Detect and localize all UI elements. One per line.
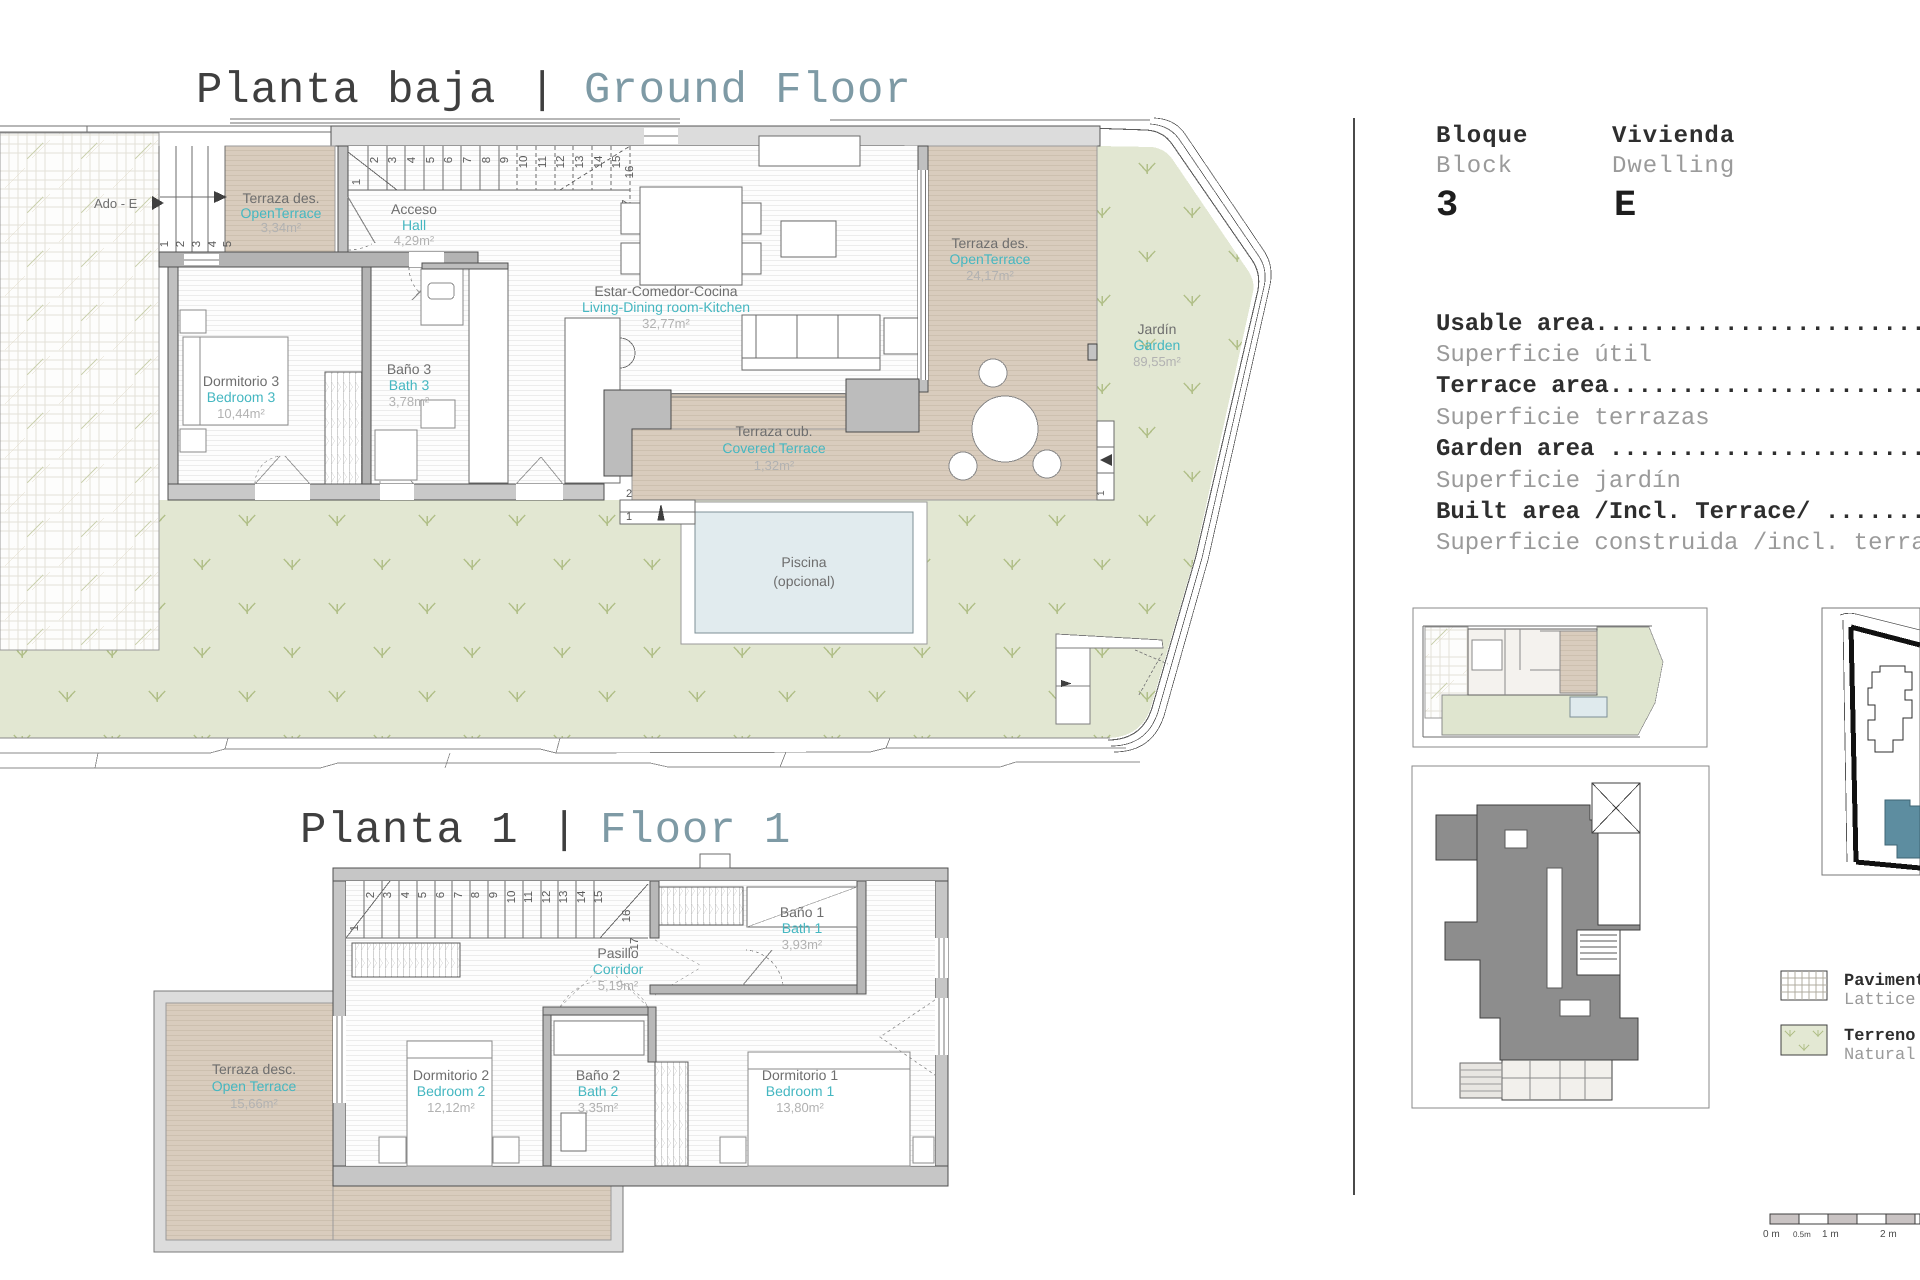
svg-text:Bedroom 1: Bedroom 1: [766, 1083, 835, 1099]
svg-text:Hall: Hall: [402, 217, 426, 233]
svg-text:1 m: 1 m: [1822, 1229, 1839, 1240]
svg-text:9: 9: [499, 157, 511, 163]
svg-text:Superficie construida /incl. t: Superficie construida /incl. terraza: [1436, 530, 1920, 557]
svg-text:3: 3: [191, 241, 203, 247]
svg-text:Open Terrace: Open Terrace: [212, 1078, 297, 1094]
svg-text:15,66m²: 15,66m²: [230, 1096, 278, 1111]
svg-text:15: 15: [611, 156, 623, 169]
svg-text:Piscina: Piscina: [781, 554, 826, 570]
svg-text:1: 1: [159, 241, 171, 247]
svg-text:4: 4: [207, 240, 219, 247]
svg-text:Covered Terrace: Covered Terrace: [722, 440, 825, 456]
svg-text:11: 11: [537, 156, 549, 168]
svg-text:10,44m²: 10,44m²: [217, 406, 265, 421]
svg-text:OpenTerrace: OpenTerrace: [950, 251, 1031, 267]
svg-text:5: 5: [417, 892, 429, 898]
svg-text:32,77m²: 32,77m²: [642, 316, 690, 331]
svg-text:7: 7: [462, 157, 474, 163]
svg-text:Terraza cub.: Terraza cub.: [735, 423, 812, 439]
svg-text:Garden: Garden: [1134, 337, 1181, 353]
svg-text:3,34m²: 3,34m²: [261, 220, 302, 235]
svg-text:Pavimento: Pavimento: [1844, 972, 1920, 991]
svg-text:Terraza desc.: Terraza desc.: [212, 1061, 296, 1077]
svg-text:Baño 1: Baño 1: [780, 904, 825, 920]
svg-text:7: 7: [453, 892, 465, 898]
svg-text:Terreno: Terreno: [1844, 1027, 1915, 1046]
svg-text:3,93m²: 3,93m²: [782, 937, 823, 952]
svg-text:3: 3: [1436, 185, 1458, 227]
svg-text:Planta 1: Planta 1: [300, 806, 518, 856]
svg-text:1: 1: [349, 925, 361, 931]
svg-text:OpenTerrace: OpenTerrace: [241, 205, 322, 221]
svg-text:(opcional): (opcional): [773, 573, 834, 589]
svg-text:Planta baja: Planta baja: [196, 66, 496, 116]
svg-text:Baño 2: Baño 2: [576, 1067, 621, 1083]
svg-text:10: 10: [518, 156, 530, 169]
svg-text:Garden area ..................: Garden area .........................: [1436, 436, 1920, 463]
svg-text:14: 14: [593, 155, 605, 168]
svg-text:Terraza des.: Terraza des.: [951, 235, 1028, 251]
svg-text:|: |: [551, 806, 578, 856]
svg-text:2: 2: [369, 157, 381, 163]
svg-text:4: 4: [400, 891, 412, 898]
svg-text:Dwelling: Dwelling: [1612, 153, 1735, 180]
svg-text:Bedroom 2: Bedroom 2: [417, 1083, 486, 1099]
svg-text:2: 2: [175, 241, 187, 247]
svg-text:6: 6: [435, 892, 447, 898]
svg-text:Bedroom 3: Bedroom 3: [207, 389, 276, 405]
svg-text:Ground Floor: Ground Floor: [584, 66, 912, 116]
svg-text:5,19m²: 5,19m²: [598, 978, 639, 993]
svg-text:Acceso: Acceso: [391, 201, 437, 217]
svg-text:3,78m²: 3,78m²: [389, 394, 430, 409]
svg-text:12: 12: [541, 891, 553, 904]
svg-text:Terraza des.: Terraza des.: [242, 190, 319, 206]
svg-text:1: 1: [351, 179, 363, 185]
svg-text:89,55m²: 89,55m²: [1133, 354, 1181, 369]
svg-text:3,35m²: 3,35m²: [578, 1100, 619, 1115]
svg-text:|: |: [529, 66, 556, 116]
svg-text:Pasillo: Pasillo: [597, 945, 638, 961]
svg-text:5: 5: [425, 157, 437, 163]
svg-text:13: 13: [558, 891, 570, 904]
svg-text:0 m: 0 m: [1763, 1229, 1780, 1240]
svg-text:Built area /Incl. Terrace/ ...: Built area /Incl. Terrace/ ..........: [1436, 499, 1920, 526]
svg-text:12: 12: [555, 156, 567, 169]
svg-text:9: 9: [488, 892, 500, 898]
svg-text:Terrace area..................: Terrace area.........................: [1436, 373, 1920, 400]
svg-text:Floor 1: Floor 1: [600, 806, 791, 856]
svg-text:1,32m²: 1,32m²: [754, 458, 795, 473]
svg-text:24,17m²: 24,17m²: [966, 268, 1014, 283]
svg-text:Usable area...................: Usable area..........................: [1436, 311, 1920, 338]
svg-text:Vivienda: Vivienda: [1612, 123, 1735, 150]
svg-text:2: 2: [626, 488, 632, 500]
svg-text:2: 2: [365, 892, 377, 898]
svg-text:5: 5: [222, 241, 234, 247]
svg-text:Superficie útil: Superficie útil: [1436, 342, 1652, 369]
svg-text:14: 14: [576, 890, 588, 903]
svg-text:12,12m²: 12,12m²: [427, 1100, 475, 1115]
svg-text:Superficie terrazas: Superficie terrazas: [1436, 405, 1710, 432]
svg-text:2 m: 2 m: [1880, 1229, 1897, 1240]
svg-text:11: 11: [523, 891, 535, 903]
svg-text:Bloque: Bloque: [1436, 123, 1528, 150]
svg-text:15: 15: [593, 891, 605, 904]
svg-text:0.5m: 0.5m: [1793, 1230, 1811, 1239]
svg-text:Corridor: Corridor: [593, 961, 644, 977]
svg-text:4: 4: [406, 156, 418, 163]
svg-text:Bath 1: Bath 1: [782, 920, 823, 936]
svg-text:16: 16: [621, 910, 633, 923]
svg-text:Dormitorio 1: Dormitorio 1: [762, 1067, 838, 1083]
svg-text:Natural: Natural: [1844, 1046, 1915, 1065]
svg-text:8: 8: [470, 892, 482, 898]
svg-text:Block: Block: [1436, 153, 1513, 180]
svg-text:1: 1: [1096, 490, 1107, 496]
svg-text:3: 3: [387, 157, 399, 163]
svg-text:Dormitorio 2: Dormitorio 2: [413, 1067, 489, 1083]
svg-text:Ado - E: Ado - E: [94, 196, 138, 211]
svg-text:4,29m²: 4,29m²: [394, 233, 435, 248]
svg-text:Baño 3: Baño 3: [387, 361, 432, 377]
svg-text:Superficie jardín: Superficie jardín: [1436, 468, 1681, 495]
svg-text:13: 13: [574, 156, 586, 169]
svg-text:1: 1: [626, 511, 632, 523]
svg-text:13,80m²: 13,80m²: [776, 1100, 824, 1115]
svg-text:Bath 2: Bath 2: [578, 1083, 619, 1099]
svg-text:Dormitorio 3: Dormitorio 3: [203, 373, 279, 389]
svg-text:Bath 3: Bath 3: [389, 377, 430, 393]
svg-text:Living-Dining room-Kitchen: Living-Dining room-Kitchen: [582, 299, 750, 315]
svg-text:8: 8: [481, 157, 493, 163]
svg-text:6: 6: [443, 157, 455, 163]
svg-text:E: E: [1614, 185, 1636, 227]
svg-text:16: 16: [624, 166, 636, 179]
svg-text:Lattice: Lattice: [1844, 991, 1915, 1010]
svg-text:10: 10: [506, 891, 518, 904]
svg-text:Jardín: Jardín: [1138, 321, 1177, 337]
svg-text:3: 3: [382, 892, 394, 898]
